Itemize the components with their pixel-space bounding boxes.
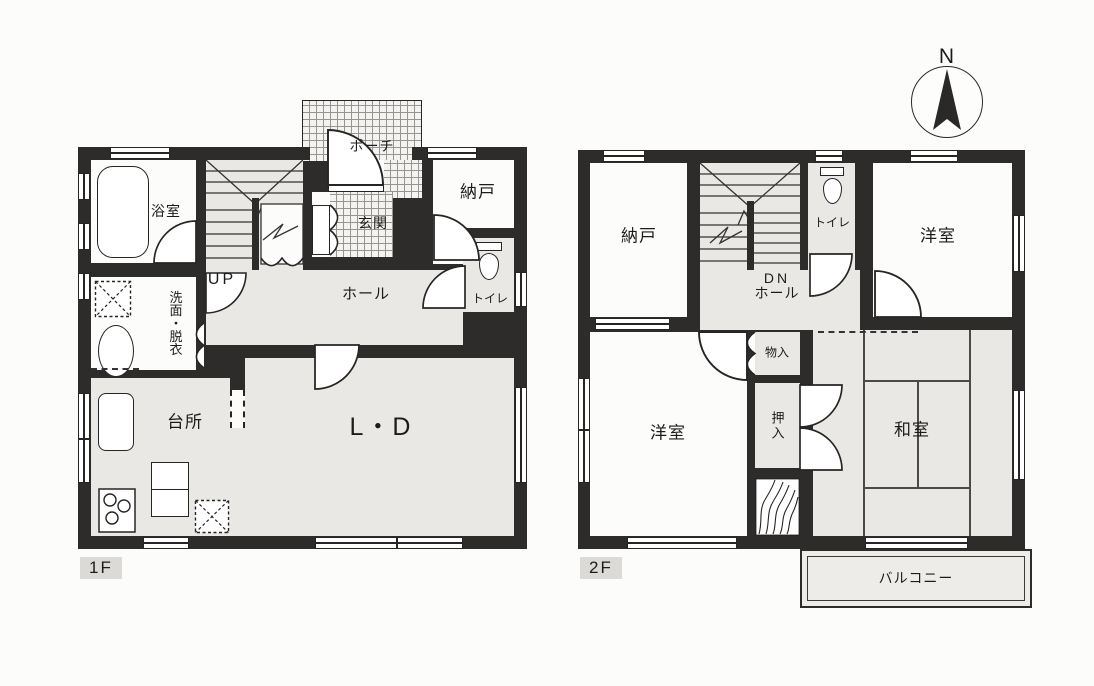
label-kitchen: 台所	[167, 408, 203, 433]
living-dining-door-arc	[315, 345, 359, 389]
window	[78, 439, 90, 483]
compass-needle-icon	[911, 66, 983, 138]
window	[397, 537, 463, 549]
porch-wall-stub-right	[412, 147, 422, 160]
window	[78, 273, 90, 300]
kitchen-sink-counter	[98, 393, 134, 451]
window	[603, 150, 645, 162]
window	[578, 430, 590, 483]
floor-plan-canvas: N	[0, 0, 1094, 686]
window	[143, 537, 189, 549]
room-living-dining-1f	[245, 358, 514, 536]
washer-space-icon	[94, 280, 132, 318]
compass: N	[905, 40, 995, 150]
window	[427, 147, 477, 159]
window	[815, 150, 843, 162]
label-storage-1f: 納戸	[460, 178, 496, 203]
floor2-plan: 納戸 DN ホール トイレ 洋室 洋室 物入 押入 和室 バルコニー	[578, 150, 1025, 549]
tatami-line	[863, 330, 865, 536]
bathtub	[97, 166, 149, 258]
label-futon-closet: 押入	[768, 411, 787, 441]
window	[78, 393, 90, 439]
floor2-tag: 2F	[580, 557, 622, 579]
label-hall-1f: ホール	[342, 283, 390, 304]
window	[627, 537, 737, 549]
label-living-dining: L・D	[350, 407, 413, 443]
window	[515, 272, 527, 307]
label-storage-2f: 納戸	[621, 222, 657, 247]
window	[578, 378, 590, 430]
window	[910, 150, 958, 162]
toilet-tank-2f	[820, 167, 844, 176]
tatami-line	[863, 487, 970, 489]
futon-closet-door-arc-lower	[800, 428, 842, 470]
label-small-storage: 物入	[765, 344, 789, 361]
window	[315, 537, 397, 549]
floor1-plan: ポーチ 玄関 浴室 洗面・脱衣 UP ホール 納戸 トイレ 台所 L・D	[78, 147, 527, 549]
window	[78, 173, 90, 200]
small-storage-bifold-door	[742, 332, 755, 375]
porch-wall-stub-left	[302, 147, 310, 160]
label-entrance: 玄関	[358, 213, 388, 233]
kitchen-ld-dashed-opening	[230, 390, 245, 428]
storage-sliding-door-2f	[595, 318, 670, 330]
label-stairs-up: UP	[208, 271, 236, 289]
label-hall-2f: ホール	[755, 283, 800, 303]
shoe-cabinet-bifold-door	[330, 205, 343, 255]
label-western-ne: 洋室	[920, 222, 956, 247]
washroom-dashed-line	[91, 368, 139, 370]
label-porch: ポーチ	[350, 136, 395, 156]
tatami-line	[969, 330, 971, 536]
understairs-closet-bifold-door	[261, 258, 303, 271]
label-bathroom: 浴室	[151, 201, 181, 221]
bathroom-door-arc	[154, 221, 196, 263]
stairs-up-icon	[206, 160, 303, 270]
balcony-sliding-door	[865, 537, 968, 549]
room-toilet-2f	[808, 163, 855, 252]
label-toilet-1f: トイレ	[472, 290, 508, 307]
floor1-tag: 1F	[80, 557, 122, 579]
label-washroom: 洗面・脱衣	[166, 291, 185, 356]
washroom-kitchen-bifold-door	[191, 323, 204, 368]
window	[78, 223, 90, 250]
label-balcony: バルコニー	[879, 568, 954, 588]
futon-closet-door-arc-upper	[800, 385, 842, 427]
refrigerator-space-icon	[194, 499, 230, 534]
window	[1013, 390, 1025, 480]
storage-door-arc-1f	[434, 215, 479, 260]
label-toilet-2f: トイレ	[814, 214, 850, 231]
wave-hatch-icon	[755, 478, 800, 536]
stairs-down-icon	[700, 163, 800, 270]
toilet-door-arc-2f	[810, 254, 852, 296]
japanese-room-dashed-line	[818, 331, 918, 333]
western-sw-door-arc	[699, 332, 747, 380]
entrance-shoe-cabinet	[312, 205, 330, 255]
toilet-door-arc-1f	[423, 266, 465, 308]
window	[515, 387, 527, 483]
kitchen-island-divider	[152, 489, 188, 490]
label-japanese-room: 和室	[894, 416, 930, 441]
window	[110, 147, 170, 159]
western-ne-door-arc	[875, 271, 921, 317]
compass-north-label: N	[939, 45, 955, 69]
kitchen-ld-opening	[230, 428, 245, 536]
label-western-sw: 洋室	[650, 419, 686, 444]
toilet-tank-1f	[476, 242, 502, 251]
window	[1013, 215, 1025, 272]
stove-icon	[98, 488, 136, 533]
